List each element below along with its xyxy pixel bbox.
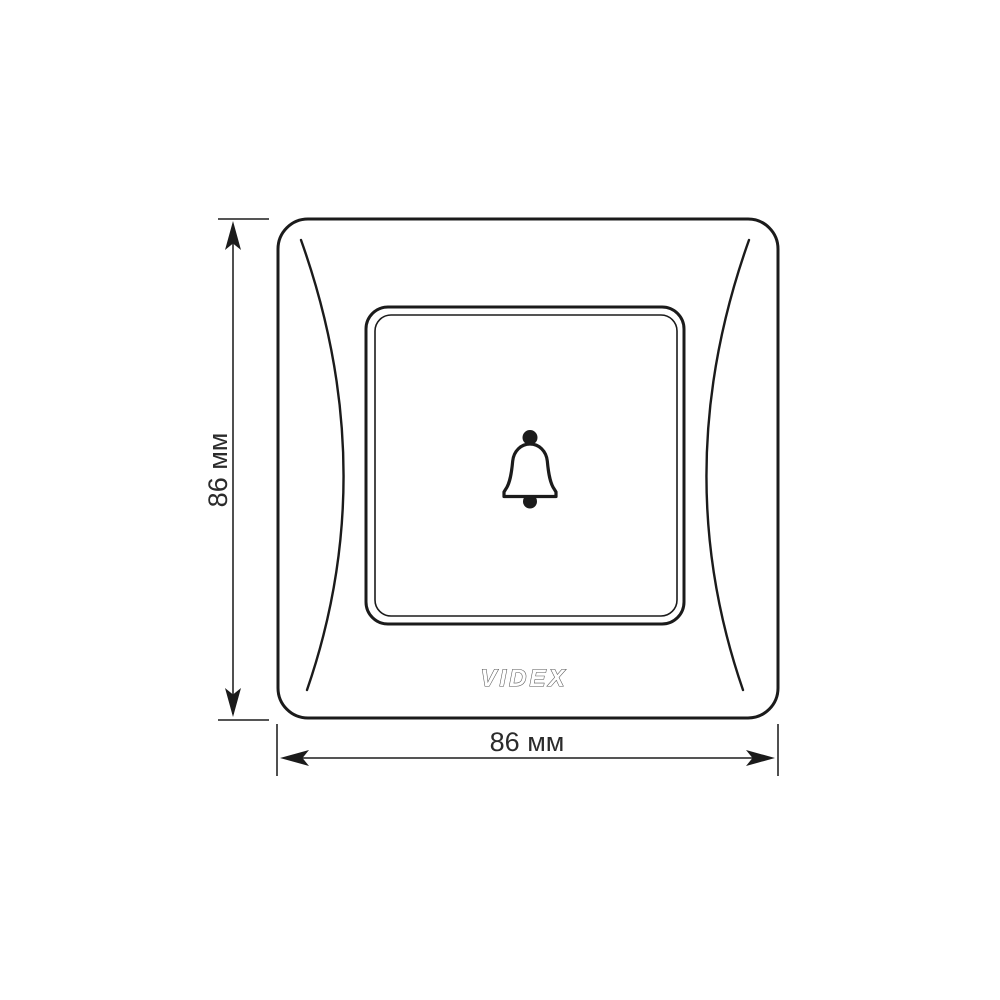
technical-drawing-canvas: VIDEX 86 мм 86 мм	[0, 0, 1000, 1000]
height-dim-label: 86 мм	[203, 433, 233, 508]
width-dim-label: 86 мм	[490, 727, 565, 757]
faceplate-drawing: VIDEX 86 мм 86 мм	[0, 0, 1000, 1000]
brand-logo: VIDEX	[480, 665, 567, 692]
